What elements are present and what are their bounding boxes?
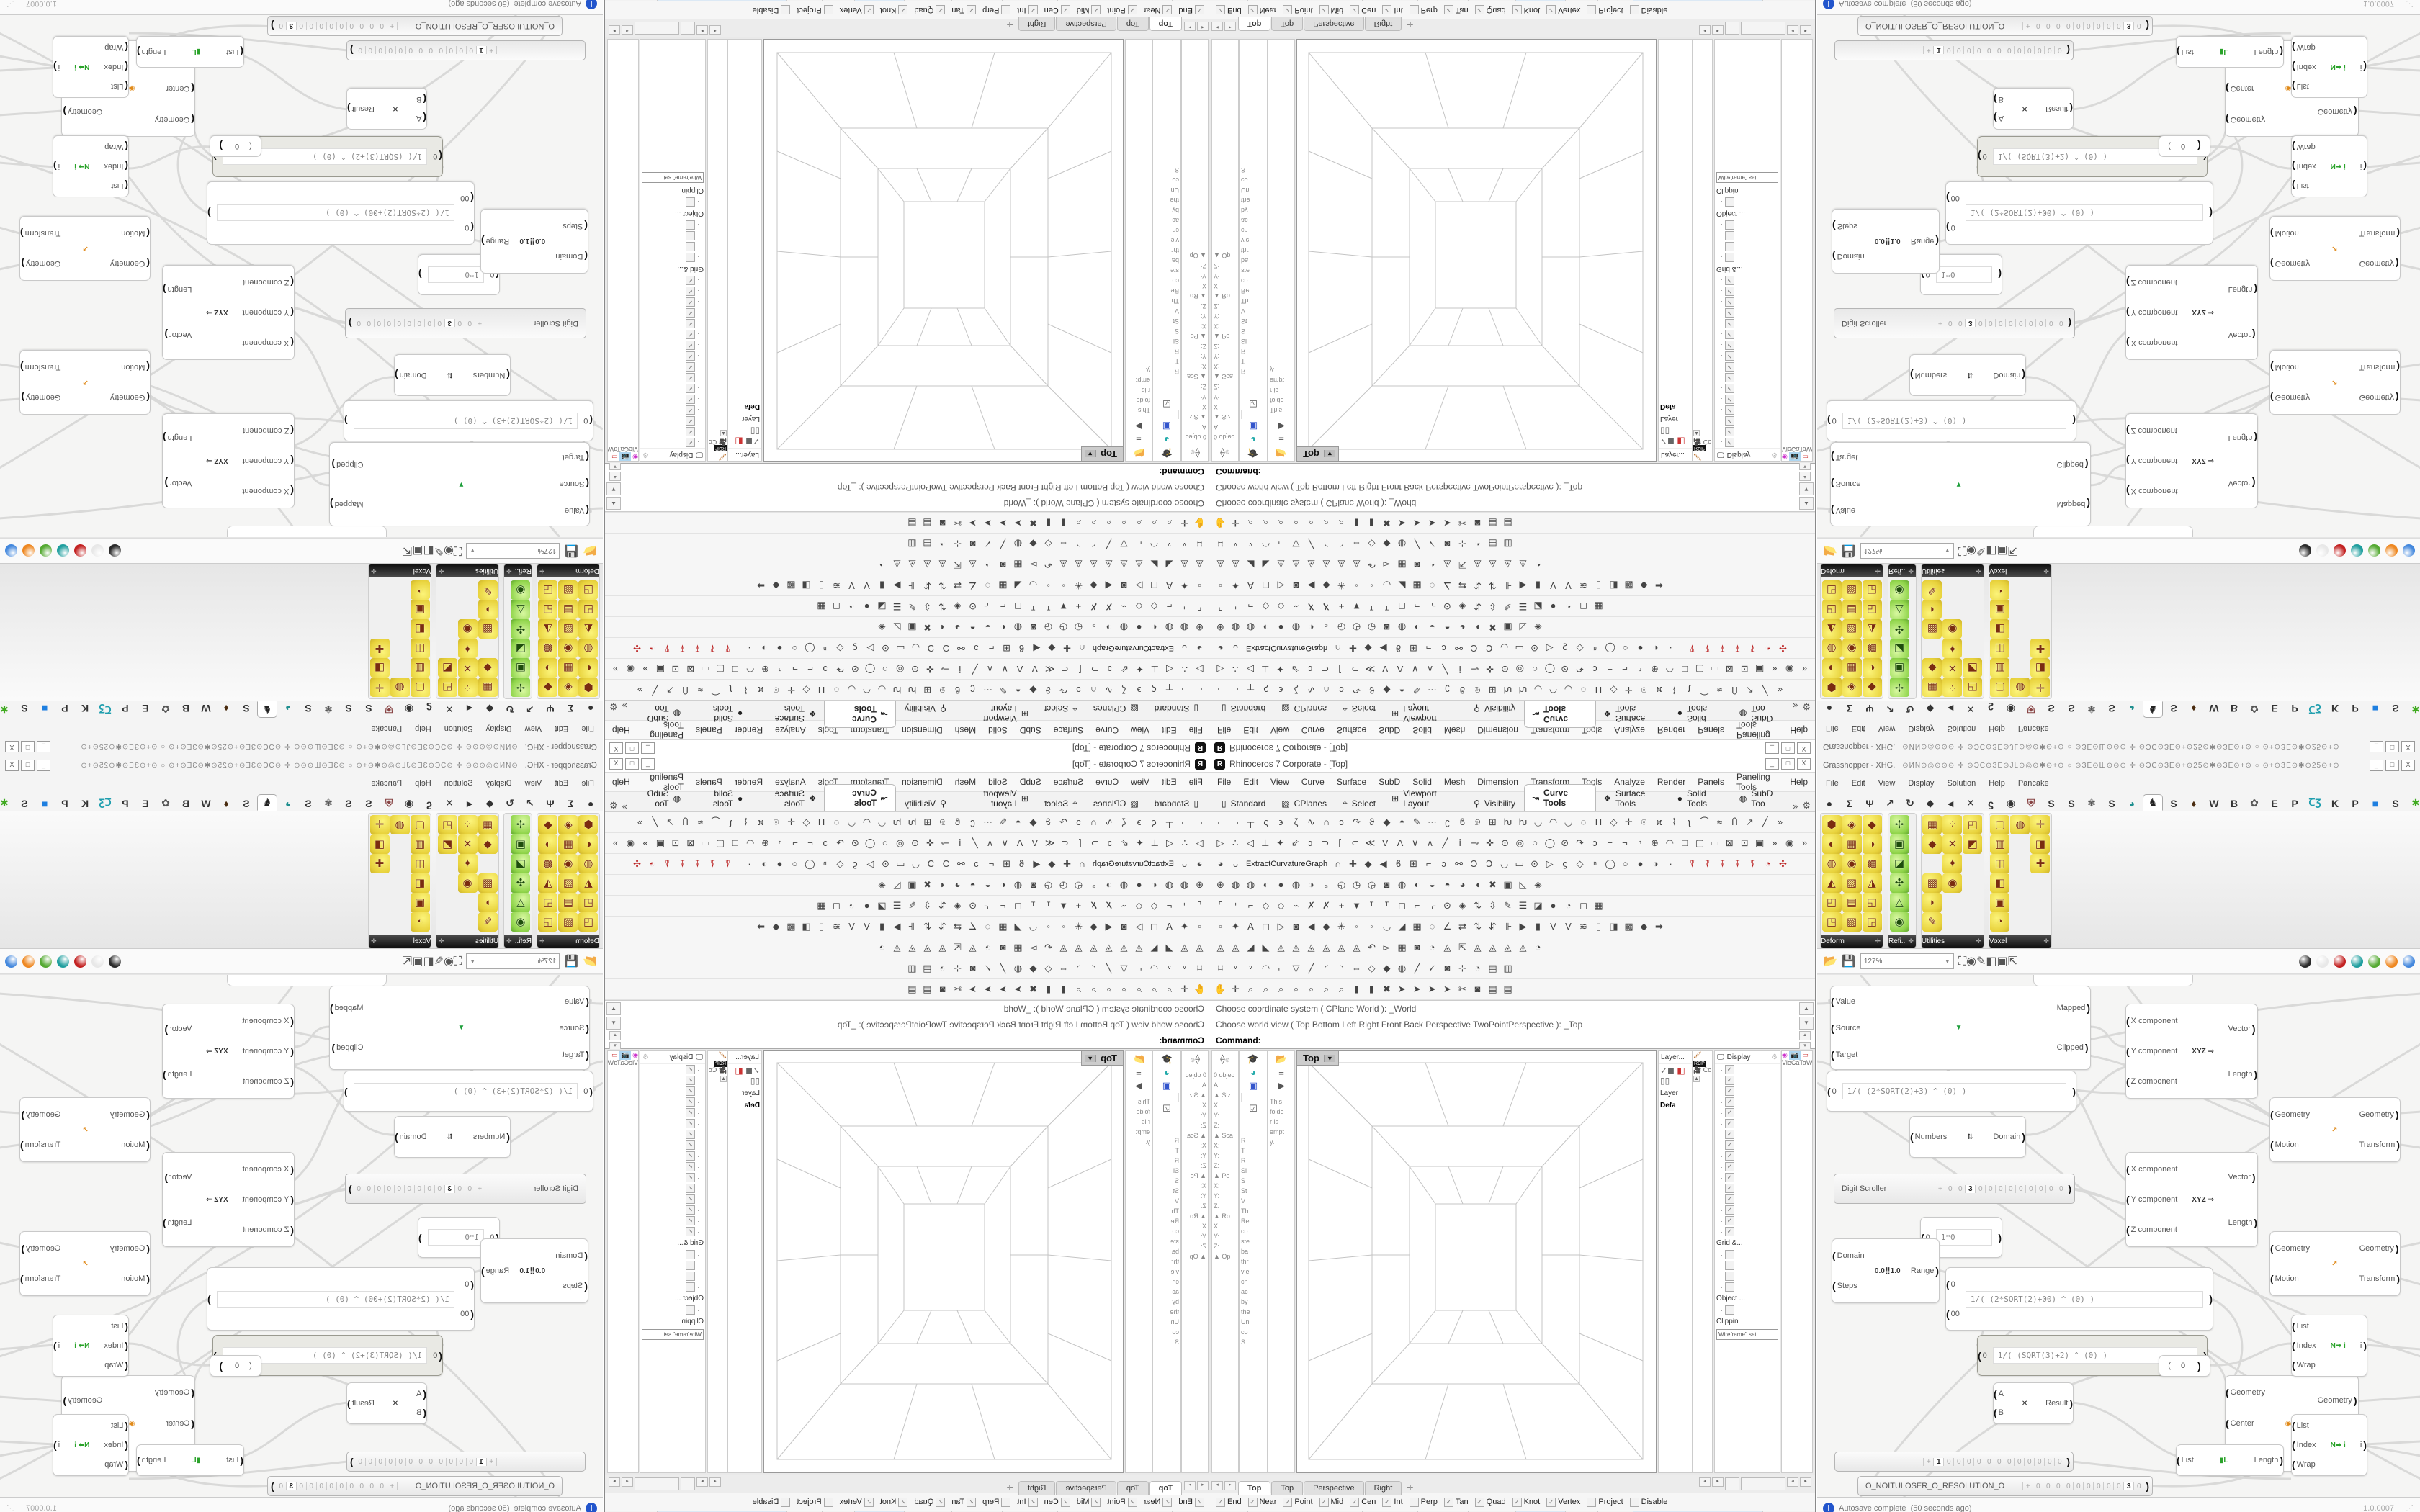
tool-icon[interactable]: ◨: [1606, 578, 1621, 593]
tool-icon[interactable]: ◈: [874, 620, 889, 634]
rhino-command-area[interactable]: Choose coordinate system ( CPlane World …: [1210, 1000, 1815, 1049]
tool-icon[interactable]: ▭: [1512, 857, 1527, 871]
display-checkbox[interactable]: [686, 405, 695, 415]
minimize-button[interactable]: _: [641, 742, 655, 754]
cplane-icon[interactable]: ⍒: [1700, 857, 1715, 871]
digit-cell[interactable]: 0: [307, 22, 317, 30]
osnap-knot[interactable]: Knot: [880, 1498, 908, 1507]
bounds[interactable]: (Numbers⇅Domain): [394, 1116, 511, 1158]
view-panel-collapsed[interactable]: ◉ 📷 ▭ VieCaTaW: [607, 1050, 639, 1473]
tool-icon[interactable]: ᵀ: [1364, 899, 1379, 913]
rcp-panel-collapsed[interactable]: 🖌 RCP 🎥 Co ▲: [707, 39, 727, 462]
chevron-down-icon[interactable]: ▼: [1085, 451, 1096, 458]
gh-category-tab[interactable]: ϛ: [420, 701, 439, 716]
tool-icon[interactable]: ▷: [1213, 662, 1228, 676]
tool-icon[interactable]: ➤: [995, 516, 1010, 530]
digit-cell[interactable]: 0: [307, 1482, 317, 1490]
component-icon[interactable]: ◍: [579, 639, 599, 659]
tool-icon[interactable]: ◍: [1394, 536, 1410, 551]
cplane-icon[interactable]: ⍒: [720, 641, 735, 655]
tool-icon[interactable]: Ͻ: [923, 641, 938, 655]
display-checkbox[interactable]: [686, 197, 695, 207]
output-port-transform[interactable]: Transform): [20, 228, 60, 239]
resolution-scroller[interactable]: O_NOITULOSER_O_RESOLUTION_O+00000000030): [267, 16, 563, 36]
tool-icon[interactable]: ▣: [653, 662, 668, 676]
tool-icon[interactable]: ⊙: [907, 836, 923, 850]
tool-icon[interactable]: ◈: [950, 899, 965, 913]
gh-menu-display[interactable]: Display: [486, 724, 512, 733]
tool-icon[interactable]: »: [608, 662, 623, 676]
view-panel-collapsed[interactable]: ◉ 📷 ▭ VieCaTaW: [1781, 1050, 1813, 1473]
tool-icon[interactable]: ▣: [905, 620, 920, 634]
tool-icon[interactable]: ◠: [1258, 536, 1273, 551]
tool-icon[interactable]: ○: [1618, 857, 1633, 871]
expression-text[interactable]: 1/( (2*SQRT(2)+3) ^ (0) ): [354, 1083, 578, 1099]
output-port-clipped[interactable]: Clipped): [2057, 459, 2090, 470]
tool-icon[interactable]: ◙: [995, 940, 1010, 955]
tool-icon[interactable]: ▣: [1500, 620, 1515, 634]
input-port-y-component[interactable]: (Y component: [243, 307, 295, 318]
move-2[interactable]: (Geometry(Motion↗Geometry)Transform): [2269, 1231, 2401, 1296]
component-icon[interactable]: ▩: [539, 639, 558, 659]
tool-icon[interactable]: ◇: [1041, 961, 1056, 976]
gh-category-tab[interactable]: ●: [581, 701, 600, 716]
tool-icon[interactable]: ◙: [1289, 578, 1304, 593]
gh-category-tab[interactable]: S: [299, 701, 318, 716]
grasshopper-canvas[interactable]: (Value(Source(Target▼Mapped)Clipped)(01/…: [0, 974, 603, 1497]
tool-icon[interactable]: ⌜: [1213, 599, 1228, 613]
digit-cell[interactable]: 0: [2024, 1458, 2034, 1466]
tool-icon[interactable]: ▷: [1192, 836, 1207, 850]
input-port-z-component[interactable]: (Z component: [2126, 276, 2178, 288]
viewport-tab-top[interactable]: Top: [1271, 1481, 1303, 1495]
display-checkbox[interactable]: [1725, 1282, 1734, 1292]
component-icon[interactable]: ▩: [1922, 873, 1942, 893]
tool-icon[interactable]: ◔: [980, 940, 995, 955]
tool-icon[interactable]: ⊂: [1057, 662, 1072, 676]
digit-cell[interactable]: 0: [2045, 1185, 2056, 1193]
tool-icon[interactable]: ◬: [935, 940, 950, 955]
status-default[interactable]: Default: [1469, 0, 1516, 1]
component-icon[interactable]: ▣: [1890, 659, 1909, 678]
toolbar-tab-surface-tools[interactable]: ❖Surface Tools: [750, 786, 824, 811]
tool-icon[interactable]: ◐: [1147, 878, 1162, 892]
tool-icon[interactable]: ◙: [935, 516, 950, 530]
tool-icon[interactable]: ◉: [623, 836, 638, 850]
tool-icon[interactable]: ◙: [1410, 557, 1425, 572]
gem-icon[interactable]: [57, 545, 69, 557]
input-port-index[interactable]: (Index: [2292, 1439, 2316, 1451]
tool-icon[interactable]: ⊙: [1527, 857, 1542, 871]
tool-icon[interactable]: ↷: [1349, 683, 1364, 697]
gem-icon[interactable]: [74, 545, 86, 557]
tool-icon[interactable]: ▤: [1500, 982, 1515, 996]
tab-scroll-right-icon[interactable]: ▸: [1184, 1481, 1196, 1490]
maximize-button[interactable]: □: [21, 760, 35, 771]
grasshopper-title-bar[interactable]: Grasshopper - XHG. ⊙ИN⊙◎⊙⊙⊙ ✜ ⊙ЭC⊙ЗЕ⊙JL⊙…: [0, 737, 603, 756]
tool-icon[interactable]: ▦: [1394, 557, 1410, 572]
display-checkbox[interactable]: [1725, 1305, 1734, 1315]
tool-icon[interactable]: ⌌: [1425, 899, 1440, 913]
tool-icon[interactable]: ✦: [1228, 578, 1243, 593]
tool-icon[interactable]: ▫: [1213, 578, 1228, 593]
layer-default-row[interactable]: Defa: [1659, 400, 1692, 413]
status-grid-snap[interactable]: Grid Snap: [1516, 0, 1567, 1]
component-icon[interactable]: ◫: [411, 854, 430, 873]
tool-icon[interactable]: ⋯: [980, 815, 995, 829]
gh-category-tab[interactable]: S: [339, 701, 358, 716]
tool-icon[interactable]: ↄ: [1334, 815, 1349, 829]
resolution-scroller[interactable]: O_NOITULOSER_O_RESOLUTION_O+00000000030): [1857, 1476, 2153, 1496]
component-icon[interactable]: ◪: [1890, 854, 1909, 873]
grasshopper-title-bar[interactable]: Grasshopper - XHG. ⊙ИN⊙◎⊙⊙⊙ ✜ ⊙ЭC⊙ЗЕ⊙JL⊙…: [1817, 756, 2420, 775]
tool-icon[interactable]: ⌐: [802, 836, 817, 850]
gh-category-tab[interactable]: ◆: [480, 701, 499, 716]
display-checkbox[interactable]: [686, 1272, 695, 1281]
tool-icon[interactable]: Ͻ: [938, 641, 954, 655]
remap-numbers[interactable]: (Value(Source(Target▼Mapped)Clipped): [1830, 442, 2091, 526]
gh-category-tab[interactable]: ◆: [480, 796, 499, 811]
menu-help[interactable]: Help: [1790, 777, 1808, 787]
component-icon[interactable]: ◭: [579, 873, 599, 893]
tool-icon[interactable]: ◠: [743, 836, 758, 850]
osnap-checkbox[interactable]: [1061, 6, 1070, 15]
gh-category-tab[interactable]: ⛨: [2022, 701, 2040, 716]
chevron-down-icon[interactable]: ▼: [1085, 1055, 1096, 1062]
tool-icon[interactable]: ◔: [1470, 961, 1485, 976]
display-checkbox[interactable]: [1725, 1216, 1734, 1225]
tool-icon[interactable]: ≈: [693, 683, 708, 697]
output-port-clipped[interactable]: Clipped): [330, 459, 363, 470]
tool-icon[interactable]: ○: [877, 836, 892, 850]
osnap-quad[interactable]: Quad: [914, 1498, 945, 1507]
tool-icon[interactable]: ▷: [1131, 578, 1147, 593]
digit-cell[interactable]: 0: [395, 320, 405, 328]
component-icon[interactable]: ▦: [478, 815, 498, 834]
tool-icon[interactable]: ◪: [1531, 899, 1546, 913]
tool-icon[interactable]: ₛ: [1319, 878, 1334, 892]
output-port-vector[interactable]: Vector): [2228, 1023, 2257, 1035]
gh-category-tab[interactable]: ✕: [1961, 701, 1980, 716]
help-panel-collapsed[interactable]: 🎓 ◕ ▣ ☑ RTRSiSStVThRecostebathrviechacby…: [1152, 39, 1181, 462]
component-icon[interactable]: ✕: [1942, 659, 1962, 678]
new-layer-icon[interactable]: ✓◼: [1660, 436, 1675, 446]
display-panel[interactable]: 🖵 Display ⚙ ················Grid &...···…: [640, 1050, 706, 1473]
digit-cell[interactable]: 0: [347, 22, 357, 30]
tool-icon[interactable]: ▣: [1752, 836, 1767, 850]
menu-edit[interactable]: Edit: [1162, 777, 1177, 787]
tool-icon[interactable]: ◣: [1147, 557, 1162, 572]
digit-cell[interactable]: 0: [366, 47, 376, 55]
tool-icon[interactable]: ∿: [1101, 815, 1116, 829]
cplane-icon[interactable]: ⍒: [660, 857, 675, 871]
tool-icon[interactable]: ◇: [1258, 899, 1273, 913]
tool-icon[interactable]: ◶: [1364, 620, 1379, 634]
tool-icon[interactable]: ₛ: [1086, 878, 1101, 892]
tool-icon[interactable]: ◵: [1071, 878, 1086, 892]
osnap-tan[interactable]: Tan: [951, 1498, 976, 1507]
osnap-end[interactable]: End: [1178, 6, 1204, 15]
osnap-quad[interactable]: Quad: [1475, 1498, 1506, 1507]
input-port-z-component[interactable]: (Z component: [243, 425, 295, 436]
tool-icon[interactable]: ▭: [698, 662, 713, 676]
menu-curve[interactable]: Curve: [1095, 777, 1119, 787]
status-osnap[interactable]: Osnap: [1633, 0, 1670, 1]
tool-icon[interactable]: ⌐: [984, 641, 999, 655]
tool-icon[interactable]: ▥: [905, 961, 920, 976]
gh-category-tab[interactable]: ♦: [2184, 796, 2203, 811]
gh-category-tab[interactable]: ↗: [1881, 796, 1899, 811]
tool-icon[interactable]: ◓: [1394, 815, 1410, 829]
menu-subd[interactable]: SubD: [1020, 725, 1041, 735]
tool-icon[interactable]: ●: [859, 599, 874, 613]
display-checkbox[interactable]: [686, 373, 695, 382]
component-icon[interactable]: ▣: [511, 834, 531, 854]
remap-numbers[interactable]: (Value(Source(Target▼Mapped)Clipped): [329, 442, 590, 526]
command-scrollbar[interactable]: ▲ ▼ ▴ ▾: [1799, 461, 1814, 510]
tool-icon[interactable]: ⊪: [1500, 578, 1515, 593]
digit-cell[interactable]: 0: [465, 1185, 475, 1193]
tool-icon[interactable]: ◐: [1410, 620, 1425, 634]
gh-category-tab[interactable]: K: [2326, 701, 2344, 716]
tool-icon[interactable]: ⊕: [1213, 620, 1228, 634]
menu-edit[interactable]: Edit: [1162, 725, 1177, 735]
osnap-checkbox[interactable]: [1162, 1498, 1172, 1507]
input-port-x-component[interactable]: (X component: [2126, 337, 2178, 348]
tool-icon[interactable]: ⇙: [1117, 662, 1132, 676]
input-port-domain[interactable]: (Domain: [555, 251, 588, 262]
display-checkbox[interactable]: [1725, 308, 1734, 318]
tool-icon[interactable]: ◬: [905, 940, 920, 955]
input-port-z-component[interactable]: (Z component: [2126, 425, 2178, 436]
input-port-geometry[interactable]: (Geometry: [2270, 1243, 2310, 1254]
toolbar-tab-standard[interactable]: ▯Standard: [1146, 701, 1206, 716]
tool-icon[interactable]: ◆: [1044, 857, 1059, 871]
layers-panel[interactable]: Layer... ✓◼ ◧ ▯▯ Layer Defa: [1658, 1050, 1693, 1473]
input-port-motion[interactable]: (Motion: [110, 1273, 150, 1284]
output-port-clipped[interactable]: Clipped): [330, 1042, 363, 1053]
input-port-x-component[interactable]: (X component: [243, 1015, 295, 1027]
input-port-wrap[interactable]: (Wrap: [104, 1459, 128, 1470]
tool-icon[interactable]: ◦: [1349, 578, 1364, 593]
tool-icon[interactable]: ◍: [1010, 961, 1026, 976]
tool-icon[interactable]: ᵀ: [1041, 899, 1056, 913]
digit-scroller[interactable]: Digit Scroller+003000000000): [1834, 308, 2075, 338]
tool-icon[interactable]: ⌕: [1116, 516, 1131, 530]
tool-icon[interactable]: ╱: [1438, 836, 1453, 850]
tool-icon[interactable]: ⋯: [1425, 815, 1440, 829]
tool-icon[interactable]: ⌕: [1101, 516, 1116, 530]
tool-icon[interactable]: ∩: [1319, 815, 1334, 829]
tool-icon[interactable]: ⇅: [935, 899, 950, 913]
tool-icon[interactable]: ▮: [1531, 578, 1546, 593]
input-port-y-component[interactable]: (Y component: [243, 1194, 295, 1205]
osnap-checkbox[interactable]: [967, 1498, 976, 1507]
display-checkbox[interactable]: [686, 351, 695, 361]
tool-icon[interactable]: ✳: [1334, 919, 1349, 934]
grasshopper-canvas[interactable]: (Value(Source(Target▼Mapped)Clipped)(01/…: [1817, 15, 2420, 538]
tool-icon[interactable]: ◣: [1258, 940, 1273, 955]
component-icon[interactable]: ▣: [1890, 834, 1909, 854]
tool-icon[interactable]: ϑ: [1041, 815, 1056, 829]
maximize-button[interactable]: □: [1781, 742, 1795, 754]
digit-cell[interactable]: +: [475, 1185, 485, 1193]
tool-icon[interactable]: ◉: [623, 662, 638, 676]
tool-icon[interactable]: ◇: [1041, 536, 1056, 551]
input-port-target[interactable]: (Target: [559, 1049, 589, 1061]
component-icon[interactable]: ✎: [1922, 581, 1942, 600]
tool-icon[interactable]: ⌕: [1258, 516, 1273, 530]
tool-icon[interactable]: ✜: [1482, 836, 1497, 850]
tool-icon[interactable]: ⌕: [1319, 516, 1334, 530]
gh-category-tab[interactable]: ⛨: [2022, 796, 2040, 811]
component-icon[interactable]: ◧: [1990, 620, 2009, 639]
tool-icon[interactable]: ✦: [1273, 836, 1288, 850]
digit-cell[interactable]: 3: [2123, 22, 2133, 30]
component-icon[interactable]: ✕: [458, 834, 478, 854]
display-checkbox[interactable]: [686, 1227, 695, 1236]
gh-category-tab[interactable]: K: [2326, 796, 2344, 811]
output-port-geometry[interactable]: Geometry): [2359, 258, 2400, 269]
palette-group-label[interactable]: Utilities✛: [1922, 935, 1984, 948]
component-icon[interactable]: ✢: [511, 815, 531, 834]
tool-icon[interactable]: ◆: [1026, 961, 1041, 976]
gem-icon[interactable]: [2368, 955, 2380, 968]
tool-icon[interactable]: ▦: [814, 599, 829, 613]
pane-left-icon[interactable]: ◂: [1699, 25, 1711, 35]
pane-right-icon[interactable]: ▸: [1800, 1477, 1811, 1487]
tool-icon[interactable]: ∴: [1228, 662, 1243, 676]
digit-cell[interactable]: 0: [426, 1458, 436, 1466]
input-port-motion[interactable]: (Motion: [110, 361, 150, 373]
toolbar-tab-curve-tools[interactable]: ↝Curve Tools: [1524, 784, 1596, 811]
folder-panel-collapsed[interactable]: 📂 ≡ ▶ Thisfolder isempty.: [1268, 39, 1295, 462]
osnap-checkbox[interactable]: [1546, 6, 1556, 15]
output-port-transform[interactable]: Transform): [2359, 361, 2400, 373]
output-port-geometry[interactable]: Geometry): [2359, 1243, 2400, 1254]
tool-icon[interactable]: ◆: [1044, 641, 1059, 655]
toolbar-tab-surface-tools[interactable]: ❖Surface Tools: [1596, 786, 1670, 811]
tool-icon[interactable]: Ⴖ: [1727, 683, 1742, 697]
output-port-result[interactable]: ): [2209, 207, 2213, 219]
digit-cell[interactable]: 0: [2083, 22, 2093, 30]
tool-icon[interactable]: ✦: [1228, 919, 1243, 934]
tool-icon[interactable]: ⊂: [1348, 662, 1363, 676]
tool-icon[interactable]: ◬: [1515, 940, 1531, 955]
tool-icon[interactable]: ◬: [1177, 557, 1192, 572]
tool-icon[interactable]: ◔: [1531, 557, 1546, 572]
osnap-knot[interactable]: Knot: [1512, 6, 1541, 15]
toolbar-tab-standard[interactable]: ▯Standard: [1146, 796, 1206, 811]
tool-icon[interactable]: ●: [1131, 878, 1147, 892]
toolbar-tab-solid-tools[interactable]: ●Solid Tools: [1670, 701, 1732, 726]
digit-cell[interactable]: 3: [1965, 1185, 1975, 1193]
tool-icon[interactable]: ≪: [1042, 662, 1057, 676]
display-checkbox[interactable]: [1725, 438, 1734, 447]
tool-icon[interactable]: ⇳: [920, 899, 935, 913]
gh-category-tab[interactable]: Σ: [1840, 796, 1859, 811]
expression-text[interactable]: 1/( (2*SQRT(2)+3) ^ (0) ): [1842, 413, 2067, 429]
osnap-cen[interactable]: Cen: [1044, 1498, 1070, 1507]
tool-icon[interactable]: ▽: [1289, 536, 1304, 551]
component-icon[interactable]: ◮: [1863, 620, 1882, 639]
tool-icon[interactable]: ➤: [980, 982, 995, 996]
tool-icon[interactable]: ➤: [965, 982, 980, 996]
gh-category-tab[interactable]: S: [2042, 701, 2061, 716]
tool-icon[interactable]: ╱: [1101, 536, 1116, 551]
gem-icon[interactable]: [2334, 955, 2346, 968]
input-port-source[interactable]: (Source: [1831, 479, 1861, 490]
status-ortho[interactable]: Ortho: [1566, 0, 1598, 1]
status-cplane[interactable]: CPlane: [1210, 0, 1248, 1]
tool-icon[interactable]: ζ: [1289, 683, 1304, 697]
tool-icon[interactable]: ◵: [1334, 878, 1349, 892]
digit-scroller-2[interactable]: +1000000000000): [1834, 1452, 2074, 1472]
tool-icon[interactable]: ↄ: [1334, 683, 1349, 697]
gh-category-tab[interactable]: B: [2225, 796, 2244, 811]
tool-icon[interactable]: ✂: [950, 982, 965, 996]
tool-icon[interactable]: ∴: [1228, 836, 1243, 850]
tool-icon[interactable]: ⊙: [965, 899, 980, 913]
tool-icon[interactable]: ✂: [1455, 516, 1470, 530]
tool-icon[interactable]: ◡: [874, 815, 889, 829]
tool-icon[interactable]: ✖: [1485, 878, 1500, 892]
cplane-icon[interactable]: ⍒: [1730, 857, 1745, 871]
tool-icon[interactable]: »: [632, 683, 647, 697]
tool-icon[interactable]: ↄ: [1303, 836, 1318, 850]
scroll-up-icon[interactable]: ▴: [609, 1031, 621, 1040]
tool-icon[interactable]: ⌁: [1289, 899, 1304, 913]
input-port-geometry[interactable]: (Geometry: [2270, 392, 2310, 403]
tool-icon[interactable]: ▫: [1192, 578, 1207, 593]
tool-icon[interactable]: ⌕: [1086, 982, 1101, 996]
display-checkbox[interactable]: [1725, 1130, 1734, 1139]
component-icon[interactable]: ▩: [1863, 854, 1882, 873]
tool-icon[interactable]: ◝: [1334, 536, 1349, 551]
osnap-checkbox[interactable]: [1128, 6, 1137, 15]
tool-icon[interactable]: ┬: [1243, 815, 1258, 829]
grasshopper-title-bar[interactable]: Grasshopper - XHG. ⊙ИN⊙◎⊙⊙⊙ ✜ ⊙ЭC⊙ЗЕ⊙JL⊙…: [0, 756, 603, 775]
tool-icon[interactable]: ◡: [1379, 919, 1394, 934]
tool-icon[interactable]: ◬: [1319, 557, 1334, 572]
tool-label[interactable]: ExtractCurvatureGraph: [1093, 644, 1174, 652]
gh-category-tab[interactable]: ↗: [521, 701, 539, 716]
tool-icon[interactable]: ⊹: [950, 961, 965, 976]
tool-icon[interactable]: ◎: [892, 662, 907, 676]
open-file-icon[interactable]: 📂: [583, 954, 597, 968]
tool-icon[interactable]: ▦: [995, 578, 1010, 593]
tool-icon[interactable]: ⌕: [1131, 982, 1147, 996]
tool-icon[interactable]: ◬: [1470, 940, 1485, 955]
tool-icon[interactable]: ◌: [1576, 683, 1591, 697]
tool-icon[interactable]: ◁: [1162, 836, 1178, 850]
tool-icon[interactable]: ╱: [1438, 662, 1453, 676]
tool-icon[interactable]: ▭: [893, 857, 908, 871]
component-icon[interactable]: ▣: [1990, 600, 2009, 620]
move-1[interactable]: (Geometry(Motion↗Geometry)Transform): [19, 350, 151, 415]
toolbar-tab-solid-tools[interactable]: ●Solid Tools: [688, 786, 750, 811]
tool-icon[interactable]: ◙: [965, 961, 980, 976]
tool-icon[interactable]: ⁿ: [1632, 662, 1647, 676]
tool-icon[interactable]: ⇙: [1288, 836, 1303, 850]
scroll-up-icon[interactable]: ▲: [606, 497, 621, 510]
component-icon[interactable]: ⁘: [458, 678, 478, 698]
output-port-geometry[interactable]: Geometry): [20, 258, 60, 269]
tool-icon[interactable]: □: [728, 662, 743, 676]
camera-icon[interactable]: 📷: [619, 452, 630, 462]
input-port-z-component[interactable]: (Z component: [2126, 1224, 2178, 1236]
tool-icon[interactable]: ➤: [1425, 982, 1440, 996]
